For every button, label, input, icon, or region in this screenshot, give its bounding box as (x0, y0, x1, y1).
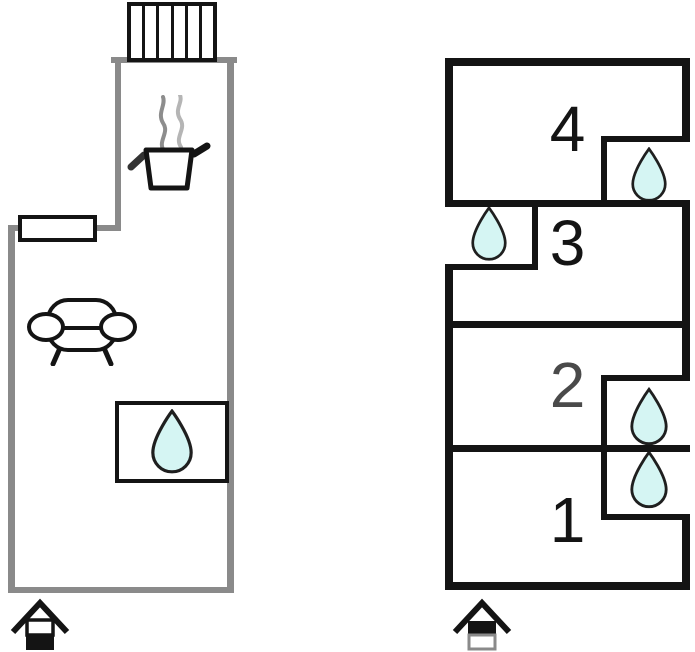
bathroom-box (115, 401, 229, 483)
wall-left-upper (115, 57, 121, 231)
stair-step (202, 6, 213, 58)
stair-step (145, 6, 159, 58)
room-3-water-box (445, 203, 538, 270)
room-1-water-box (601, 445, 690, 520)
water-drop-icon (469, 206, 509, 262)
wall-divider-3-2 (445, 321, 690, 328)
stair-step (159, 6, 173, 58)
wall-right (227, 57, 234, 593)
wall-bottom (8, 587, 234, 593)
sofa-icon (26, 296, 138, 366)
stair-step (188, 6, 202, 58)
room-2-water-box (601, 375, 690, 452)
water-drop-icon (628, 450, 670, 510)
floor-plan-canvas: 4 3 2 1 (0, 0, 695, 652)
water-drop-icon (148, 409, 196, 475)
upper-floor-house-icon (452, 597, 512, 652)
stair-step (131, 6, 145, 58)
ground-floor-house-icon (10, 597, 70, 652)
stairs-icon (127, 2, 217, 62)
wall-divider-4-3 (445, 200, 690, 207)
water-drop-icon (629, 147, 669, 203)
room-4-water-box (601, 136, 690, 207)
water-drop-icon (628, 387, 670, 447)
stair-step (174, 6, 188, 58)
window-symbol (18, 215, 97, 242)
wall-divider-2-1 (445, 445, 690, 452)
wall-left-lower (8, 225, 15, 593)
cooking-pot-icon (126, 138, 212, 196)
